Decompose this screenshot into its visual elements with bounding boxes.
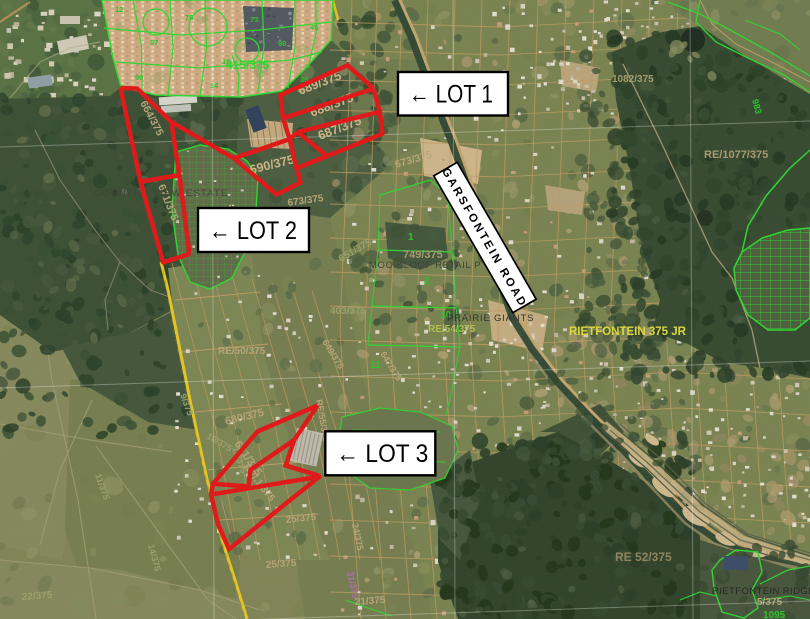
svg-text:← LOT 2: ← LOT 2 xyxy=(209,217,297,245)
svg-text:← LOT 1: ← LOT 1 xyxy=(409,81,493,109)
svg-text:← LOT 3: ← LOT 3 xyxy=(336,440,428,468)
